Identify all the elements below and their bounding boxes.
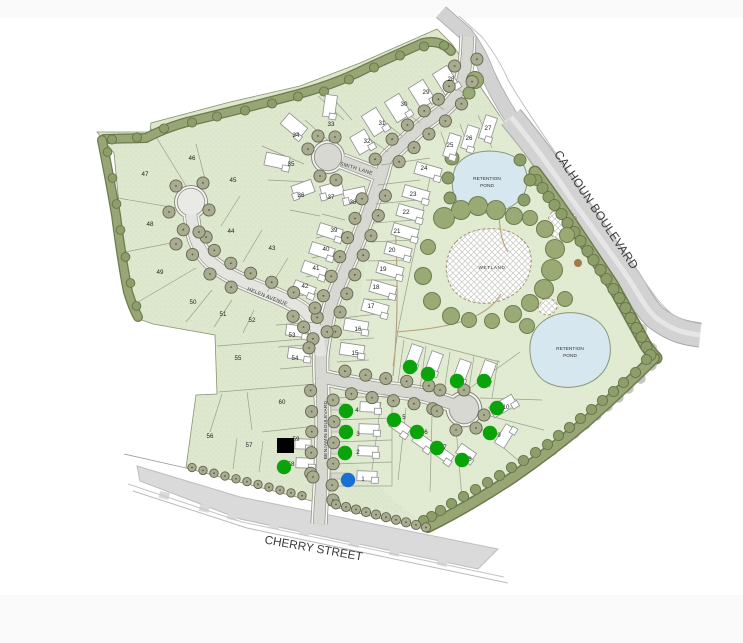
svg-text:POND: POND [563, 353, 577, 359]
svg-text:51: 51 [220, 311, 227, 318]
svg-text:54: 54 [292, 355, 299, 362]
svg-text:32: 32 [364, 138, 371, 145]
svg-text:33: 33 [328, 121, 335, 128]
svg-text:37: 37 [328, 194, 335, 201]
svg-text:BENJAMIN BOULEVARD: BENJAMIN BOULEVARD [323, 400, 329, 459]
svg-text:20: 20 [389, 247, 396, 254]
svg-text:34: 34 [293, 132, 300, 139]
svg-text:POND: POND [480, 183, 494, 189]
svg-text:26: 26 [466, 135, 473, 142]
svg-text:9: 9 [497, 432, 501, 439]
svg-text:60: 60 [279, 399, 286, 406]
svg-text:30: 30 [401, 101, 408, 108]
svg-text:3: 3 [356, 431, 360, 438]
svg-text:40: 40 [323, 246, 330, 253]
svg-text:6: 6 [424, 429, 428, 436]
svg-text:36: 36 [298, 192, 305, 199]
svg-text:47: 47 [142, 171, 149, 178]
svg-text:38: 38 [350, 199, 357, 206]
svg-text:56: 56 [207, 433, 214, 440]
svg-text:52: 52 [249, 317, 256, 324]
svg-text:4: 4 [355, 407, 359, 414]
svg-text:21: 21 [394, 228, 401, 235]
svg-text:2: 2 [356, 449, 360, 456]
svg-text:RETENTION: RETENTION [473, 176, 501, 182]
svg-text:17: 17 [368, 303, 375, 310]
svg-text:39: 39 [331, 227, 338, 234]
svg-text:59: 59 [293, 436, 300, 443]
svg-text:25: 25 [447, 142, 454, 149]
svg-text:48: 48 [147, 221, 154, 228]
svg-text:19: 19 [380, 266, 387, 273]
svg-text:29: 29 [423, 89, 430, 96]
svg-text:18: 18 [373, 284, 380, 291]
svg-text:15: 15 [352, 350, 359, 357]
svg-text:16: 16 [355, 326, 362, 333]
svg-text:50: 50 [190, 299, 197, 306]
svg-text:45: 45 [230, 177, 237, 184]
svg-text:49: 49 [157, 269, 164, 276]
svg-text:1: 1 [361, 476, 365, 483]
svg-text:41: 41 [313, 265, 320, 272]
svg-text:43: 43 [269, 245, 276, 252]
svg-text:24: 24 [421, 165, 428, 172]
svg-text:46: 46 [189, 155, 196, 162]
svg-text:5: 5 [402, 414, 406, 421]
svg-text:RETENTION: RETENTION [556, 346, 584, 352]
svg-text:31: 31 [379, 120, 386, 127]
svg-text:53: 53 [289, 332, 296, 339]
svg-text:55: 55 [235, 355, 242, 362]
svg-text:22: 22 [403, 209, 410, 216]
svg-text:57: 57 [246, 442, 253, 449]
svg-text:42: 42 [302, 283, 309, 290]
svg-text:44: 44 [228, 228, 235, 235]
svg-text:WETLAND: WETLAND [479, 265, 506, 271]
svg-text:23: 23 [410, 191, 417, 198]
svg-text:28: 28 [448, 76, 455, 83]
svg-text:35: 35 [288, 161, 295, 168]
svg-text:27: 27 [485, 125, 492, 132]
